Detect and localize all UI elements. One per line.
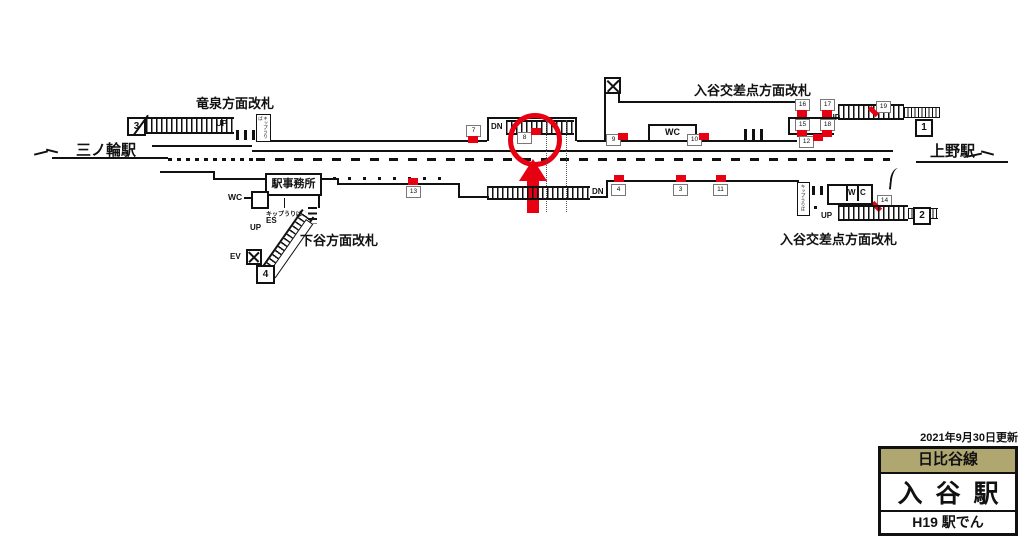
passage-wall bbox=[788, 117, 790, 135]
station-map: 三ノ輪駅 上野駅 竜泉方面改札 3 UP キップうりば DN 入谷交差点方面改札… bbox=[0, 0, 1024, 545]
wall-break-mark bbox=[889, 167, 903, 190]
ad-position-19: 19 bbox=[876, 101, 891, 113]
toilet-divider bbox=[857, 186, 859, 201]
up-label: UP bbox=[250, 223, 261, 232]
dn-label: DN bbox=[592, 187, 604, 196]
upper-platform-edge bbox=[152, 145, 252, 147]
concourse-top-wall bbox=[618, 101, 798, 103]
ad-marker-11 bbox=[716, 175, 726, 182]
stair-bay-outline bbox=[487, 117, 489, 141]
exit-1-badge: 1 bbox=[915, 119, 933, 137]
station-right-label: 上野駅 bbox=[930, 140, 975, 161]
ticket-office-label: キップうりば bbox=[259, 116, 269, 140]
track-break-mark bbox=[34, 150, 48, 155]
ad-marker-17 bbox=[822, 110, 832, 117]
elevator-icon bbox=[246, 249, 262, 265]
ad-position-13: 13 bbox=[406, 186, 421, 198]
upper-platform-wall bbox=[268, 140, 487, 142]
ticket-gate-bars bbox=[744, 129, 765, 140]
station-office-label: 駅事務所 bbox=[267, 175, 320, 193]
ticket-leader-line bbox=[284, 198, 285, 208]
station-title-panel: 日比谷線 入谷駅 H19 駅でん bbox=[878, 446, 1018, 536]
stairs-up-exit2 bbox=[838, 205, 908, 221]
ad-position-3: 3 bbox=[673, 184, 688, 196]
ad-position-4: 4 bbox=[611, 184, 626, 196]
station-name-title: 入谷駅 bbox=[881, 474, 1015, 510]
lower-platform-edge bbox=[337, 183, 460, 185]
ticket-office-box: キップうりば bbox=[797, 182, 810, 216]
ad-marker-3 bbox=[676, 175, 686, 182]
stairs-tail-exit1 bbox=[904, 107, 940, 118]
ad-marker-7 bbox=[468, 136, 478, 143]
stair-recess-wall bbox=[458, 196, 489, 198]
station-left-underline bbox=[52, 157, 168, 159]
toilet-w-label: W bbox=[848, 188, 856, 197]
ticket-gate-bars bbox=[236, 130, 257, 140]
ad-marker-4 bbox=[614, 175, 624, 182]
updated-date: 2021年9月30日更新 bbox=[860, 429, 1018, 445]
ad-position-11: 11 bbox=[713, 184, 728, 196]
ticket-office-box: キップうりば bbox=[256, 114, 271, 142]
stair-bay-outline bbox=[575, 117, 577, 141]
dn-label: DN bbox=[491, 122, 503, 131]
ad-marker-10 bbox=[699, 133, 709, 140]
lower-platform-edge bbox=[160, 171, 215, 173]
exit-4-badge: 4 bbox=[256, 265, 275, 284]
toilet-box-lower-left bbox=[251, 191, 269, 209]
platform-pillar-dots bbox=[333, 177, 445, 180]
ad-marker-12 bbox=[813, 134, 823, 141]
track-break-mark bbox=[981, 150, 994, 155]
exit-2-badge: 2 bbox=[913, 207, 931, 225]
station-code-label: H19 駅でん bbox=[881, 510, 1015, 533]
gate-label-iriya-top: 入谷交差点方面改札 bbox=[694, 80, 811, 99]
highlight-arrow bbox=[519, 159, 547, 181]
station-right-underline bbox=[916, 161, 1008, 163]
ticket-office-label: キップうりば bbox=[801, 184, 806, 211]
lower-platform-edge bbox=[606, 180, 799, 182]
gate-label-shitaya: 下谷方面改札 bbox=[300, 230, 378, 249]
office-wall bbox=[318, 194, 320, 208]
ad-marker-13 bbox=[408, 178, 418, 185]
stairs-down-lower-platform bbox=[487, 186, 590, 200]
line-name-badge: 日比谷線 bbox=[881, 449, 1015, 474]
ad-marker-18 bbox=[822, 130, 832, 137]
ad-marker-16 bbox=[797, 110, 807, 117]
track-centerline-dashes bbox=[256, 158, 890, 161]
upper-platform-edge bbox=[252, 150, 893, 152]
toilet-c-label: C bbox=[860, 188, 866, 197]
up-label: UP bbox=[216, 119, 227, 128]
up-label: UP bbox=[821, 211, 832, 220]
platform-pillar-dot bbox=[814, 206, 817, 209]
gate-label-ryusen: 竜泉方面改札 bbox=[196, 93, 274, 112]
ad-position-12: 12 bbox=[799, 136, 814, 148]
track-centerline-dots bbox=[168, 158, 256, 161]
station-office-box: 駅事務所 bbox=[265, 173, 322, 196]
ev-label: EV bbox=[230, 252, 241, 261]
ad-marker-9 bbox=[618, 133, 628, 140]
gate-label-iriya-bottom: 入谷交差点方面改札 bbox=[780, 229, 897, 248]
stair-recess-wall bbox=[606, 180, 608, 198]
toilet-label-lower-left: WC bbox=[228, 192, 242, 202]
es-label: ES bbox=[266, 216, 277, 225]
track-break-mark bbox=[46, 149, 58, 154]
